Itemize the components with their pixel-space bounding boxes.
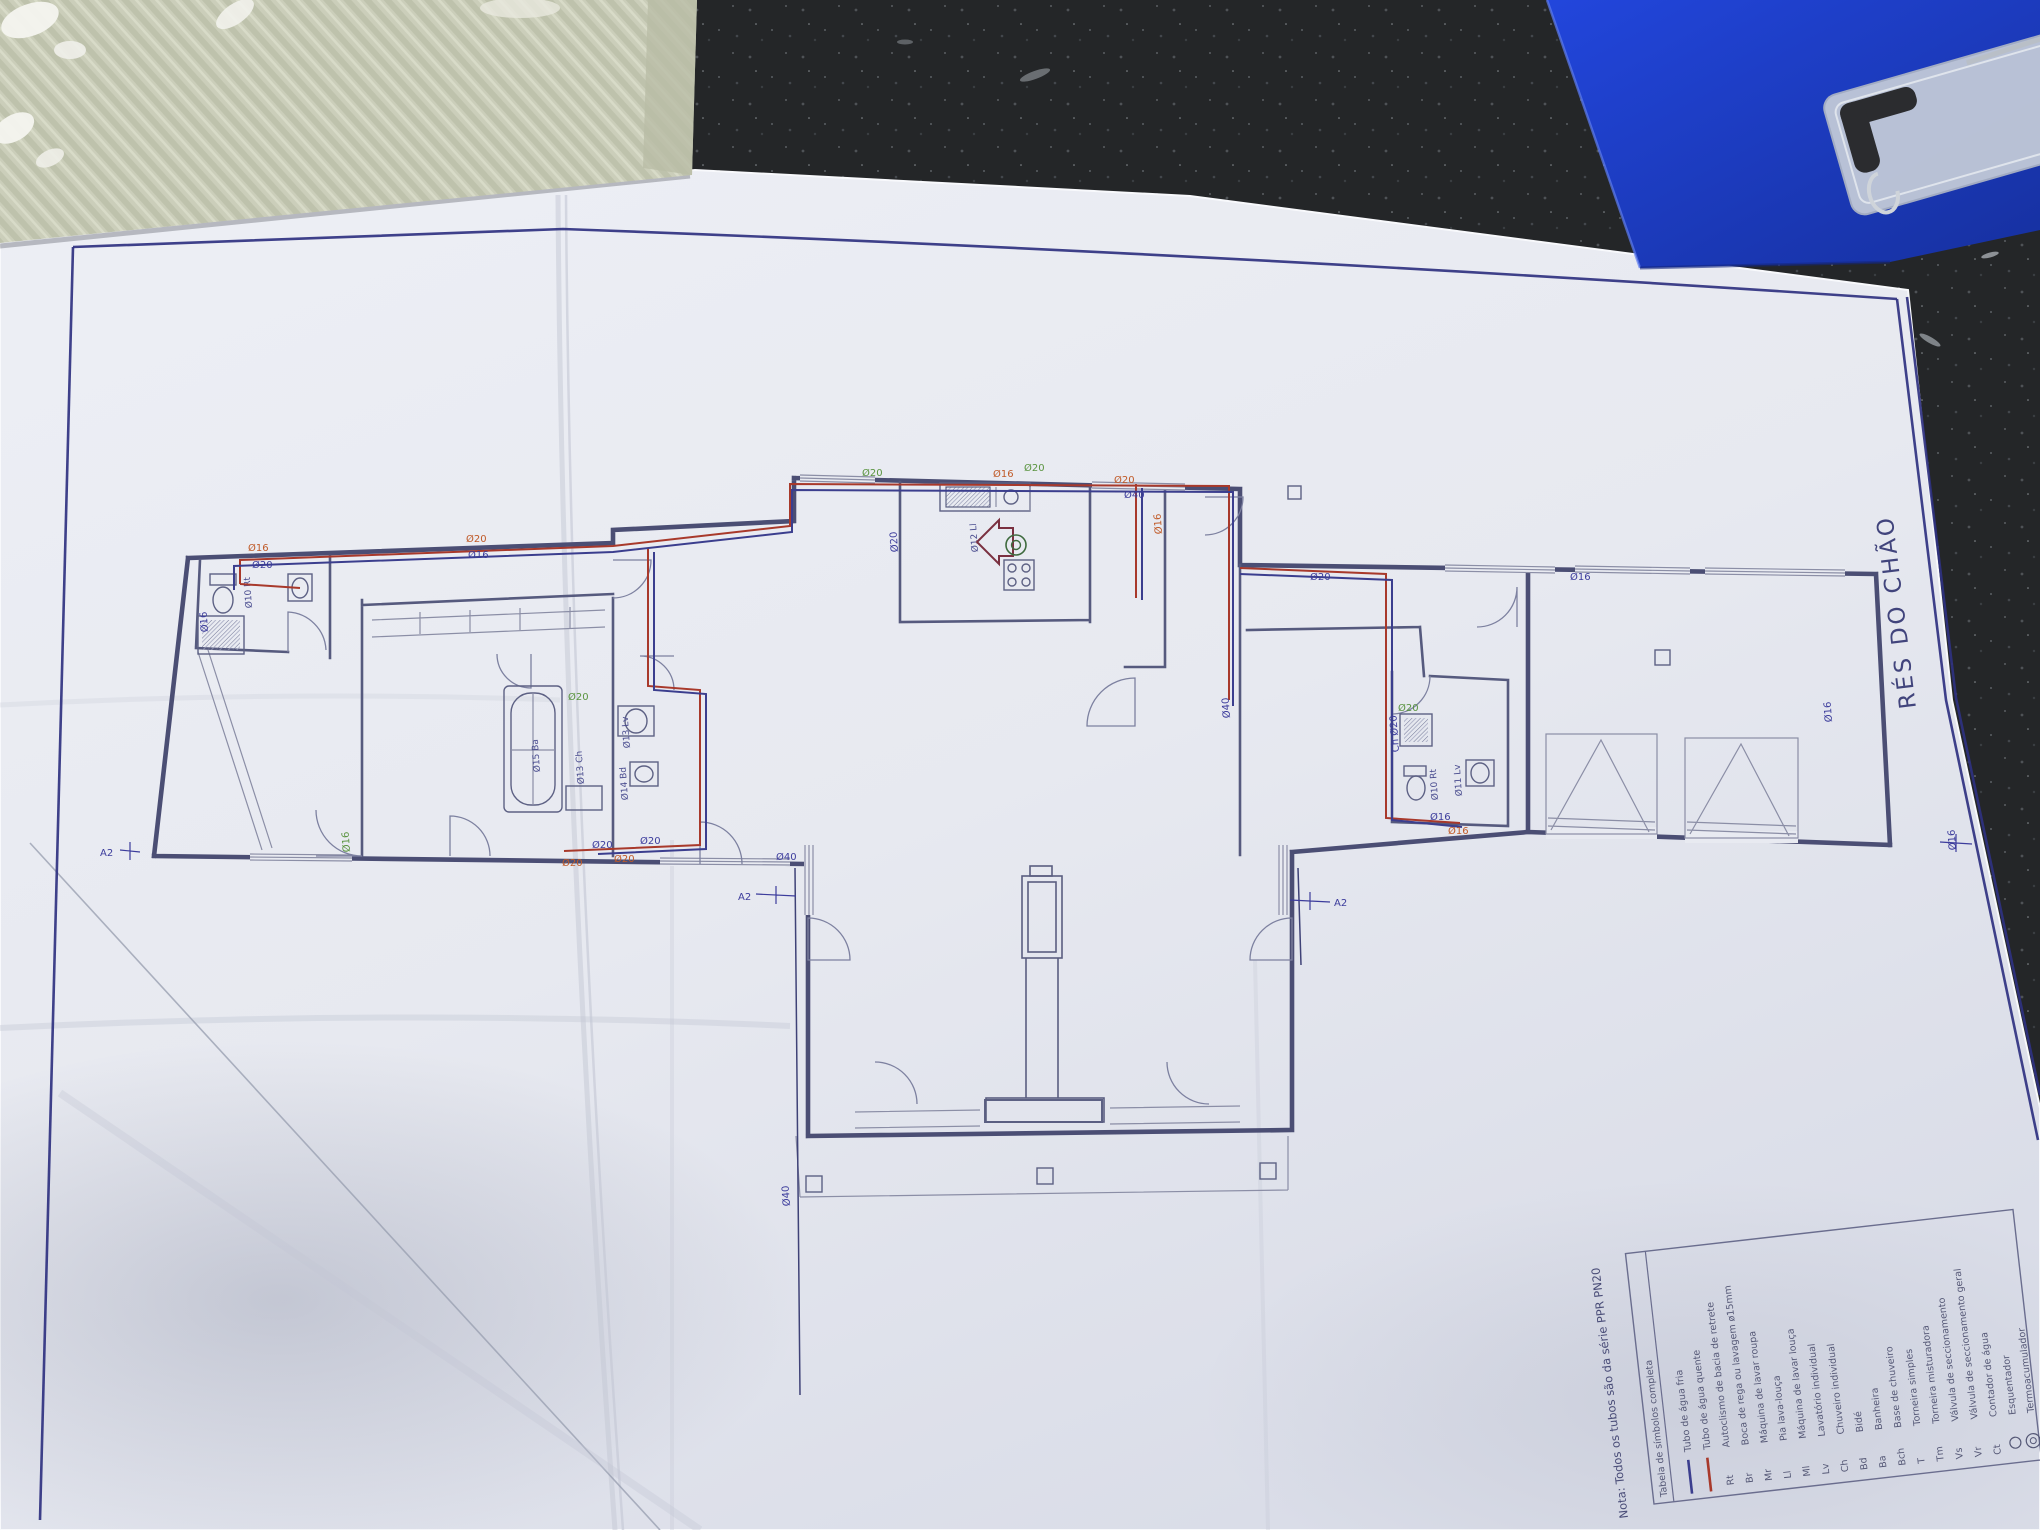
pipe-label: Ø20 [592,839,613,851]
svg-text:Ct: Ct [1992,1443,2004,1455]
fixture-label: Ø10 Rt [242,576,255,608]
fixture-label: Ø15 Ba [530,739,543,773]
pipe-label: Ø16 [1430,811,1451,823]
pipe-label: Ø16 [1822,701,1835,722]
svg-text:Vr: Vr [1973,1446,1985,1458]
fixture-label: Ø12 Ll [968,523,981,553]
cardboard-edge [643,0,697,175]
shower-icon [1404,718,1428,742]
svg-text:Br: Br [1744,1472,1756,1484]
pipe-label: Ø20 [1114,474,1135,486]
pipe-label: Ø16 [1946,829,1959,850]
svg-text:Vs: Vs [1954,1447,1966,1460]
pipe-label: Ø16 [1448,825,1469,837]
svg-text:Ml: Ml [1801,1465,1813,1477]
fixture-label: Ø13 Ch [574,750,587,784]
pipe-label: Ø20 [466,533,487,545]
svg-text:Bd: Bd [1858,1457,1870,1471]
pipe-label: Ø40 [1124,489,1145,501]
svg-text:Bch: Bch [1896,1447,1909,1466]
lint-speck [897,40,913,45]
photo-of-floor-plan: Ø10 Rt Ø16 Ø15 Ba Ø13 Lv Ø14 Bd Ø13 Ch [0,0,2040,1530]
pipe-label: Ø40 [1220,697,1233,718]
blueprint-paper: Ø10 Rt Ø16 Ø15 Ba Ø13 Lv Ø14 Bd Ø13 Ch [0,170,2040,1530]
svg-text:Tm: Tm [1934,1446,1947,1463]
svg-text:Rt: Rt [1725,1474,1737,1486]
fixture-label: Ø11 Lv [1452,763,1465,796]
pipe-label: Ø20 [1310,571,1331,583]
pipe-label: Ø20 [562,857,583,869]
pipe-label: Ø20 [614,853,635,865]
fixture-label: Ø10 Rt [1428,768,1441,800]
pipe-label: Ø16 [1570,571,1591,583]
svg-text:A2: A2 [738,892,751,903]
pipe-label: Ø20 [640,835,661,847]
pipe-label: Ø16 [248,542,269,554]
pipe-label: Ø20 [888,531,901,552]
svg-text:Ba: Ba [1877,1455,1889,1469]
pipe-label: Ø40 [776,851,797,863]
pipe-label: Ø20 [1024,462,1045,474]
pipe-label: Ø16 [993,468,1014,480]
pipe-label: Ø20 [568,691,589,703]
fixture-label: Ø14 Bd [618,767,631,801]
svg-text:A2: A2 [1334,898,1347,909]
glue-blob [54,41,86,59]
svg-text:Ch: Ch [1839,1459,1851,1473]
pipe-label: Ø16 [1152,513,1165,534]
pipe-label: Ø20 [252,559,273,571]
pipe-label: Ø40 [780,1185,793,1206]
svg-text:Lv: Lv [1820,1462,1832,1474]
pipe-label: Ø16 [198,611,211,632]
svg-text:A2: A2 [100,848,113,859]
pipe-label: Ø16 [340,831,353,852]
pipe-label: Ø20 [862,467,883,479]
svg-text:Mr: Mr [1763,1468,1775,1481]
fixture-label: Ø13 Lv [620,715,633,748]
pipe-label: Ø16 [468,549,489,561]
pipe-label: Ø20 [1398,702,1419,714]
svg-text:Ll: Ll [1782,1470,1794,1479]
